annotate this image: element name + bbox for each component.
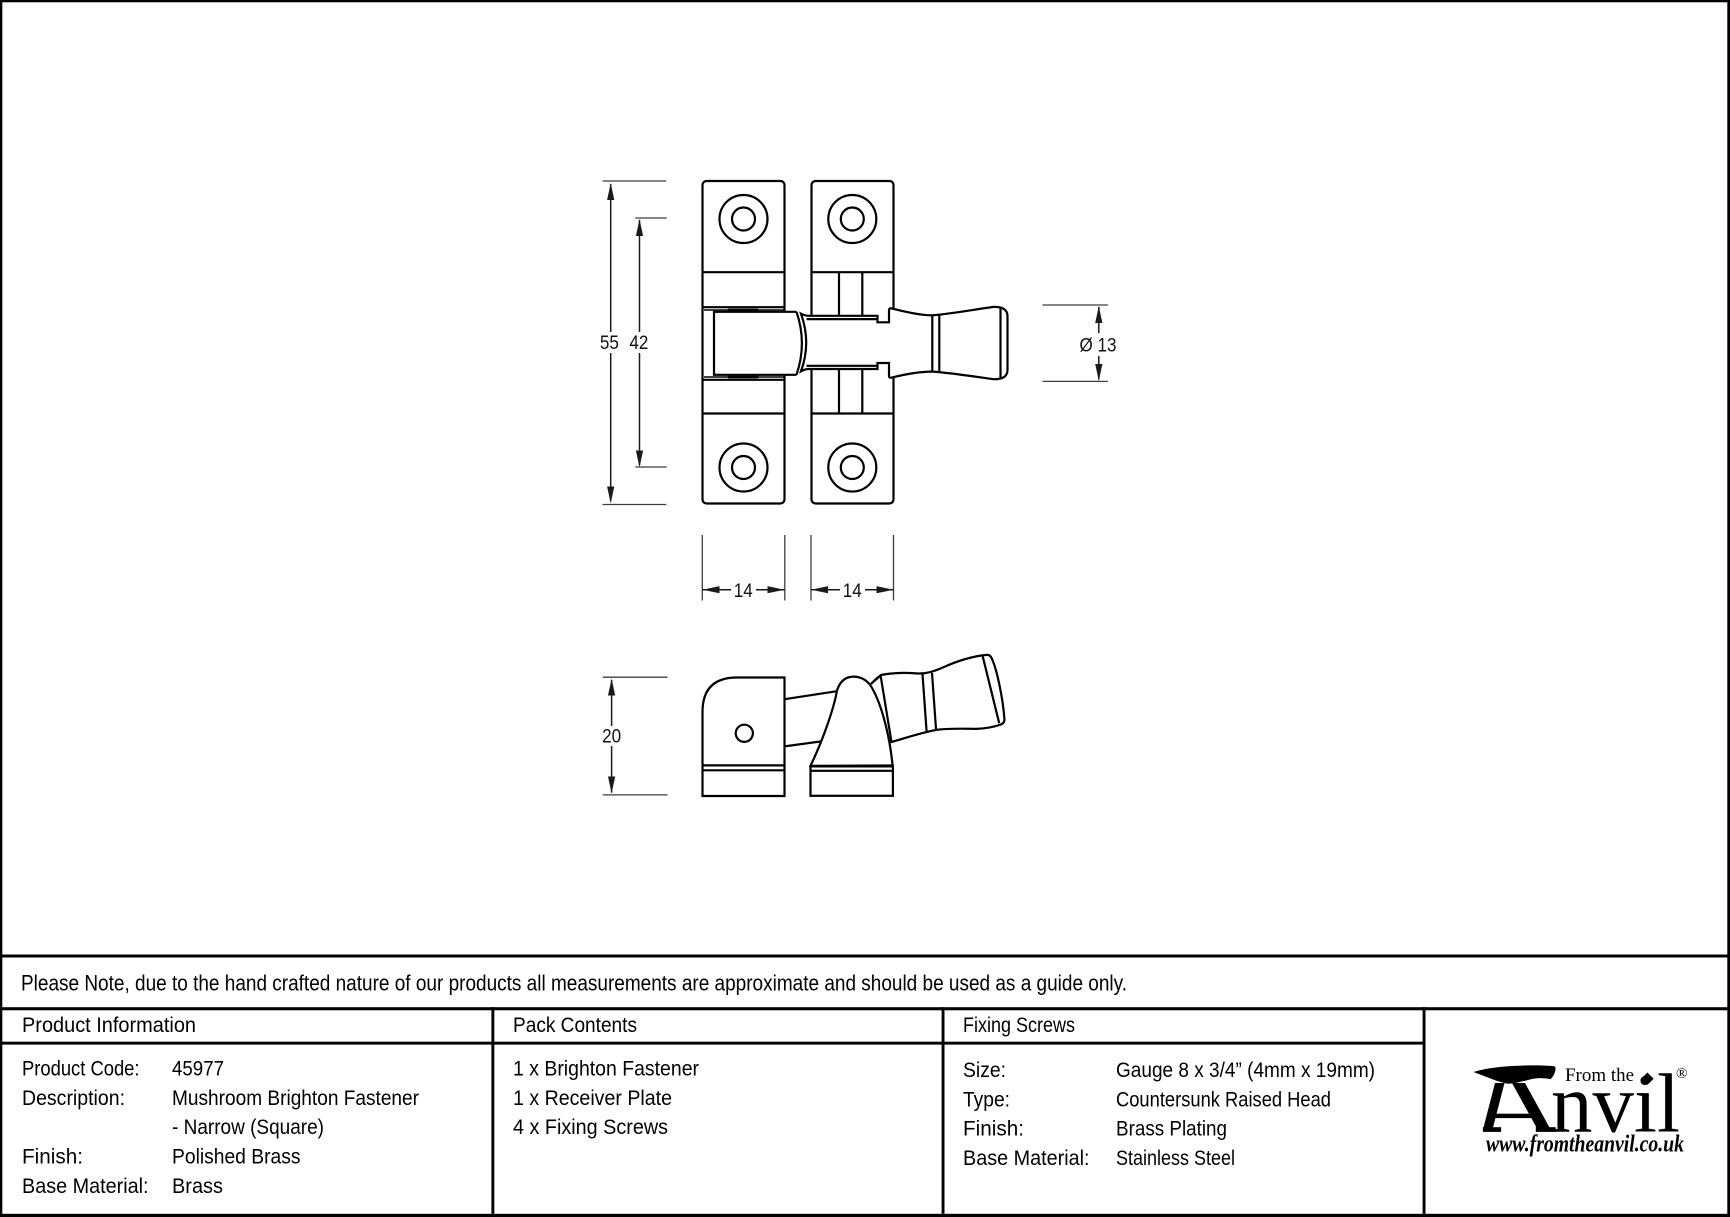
svg-text:20: 20 [602,727,621,748]
svg-text:42: 42 [629,333,648,354]
svg-text:®: ® [1676,1066,1687,1082]
svg-text:Description:: Description: [22,1087,125,1110]
svg-text:Countersunk Raised Head: Countersunk Raised Head [1116,1088,1331,1111]
svg-text:Type:: Type: [963,1088,1010,1111]
svg-text:4 x Fixing Screws: 4 x Fixing Screws [513,1116,668,1139]
svg-text:Ø 13: Ø 13 [1080,335,1117,356]
svg-text:Brass Plating: Brass Plating [1116,1118,1227,1141]
svg-text:www.fromtheanvil.co.uk: www.fromtheanvil.co.uk [1486,1132,1684,1158]
svg-text:55: 55 [600,333,619,354]
svg-text:Base Material:: Base Material: [22,1175,149,1198]
svg-text:1 x Receiver Plate: 1 x Receiver Plate [513,1087,672,1110]
svg-text:45977: 45977 [172,1057,224,1080]
svg-text:Pack Contents: Pack Contents [513,1014,637,1037]
svg-text:Finish:: Finish: [963,1118,1024,1141]
svg-text:- Narrow (Square): - Narrow (Square) [172,1116,324,1139]
svg-text:Gauge 8 x 3/4” (4mm x 19mm): Gauge 8 x 3/4” (4mm x 19mm) [1116,1059,1375,1082]
svg-text:Polished Brass: Polished Brass [172,1145,301,1168]
svg-text:Fixing Screws: Fixing Screws [963,1014,1075,1037]
svg-text:Brass: Brass [172,1175,223,1198]
svg-text:Size:: Size: [963,1059,1006,1082]
svg-text:14: 14 [734,581,753,602]
svg-text:Product Information: Product Information [22,1014,196,1037]
svg-text:Please Note, due to the hand c: Please Note, due to the hand crafted nat… [21,971,1127,996]
svg-text:1 x Brighton Fastener: 1 x Brighton Fastener [513,1057,699,1080]
svg-text:Finish:: Finish: [22,1145,83,1168]
svg-text:Product Code:: Product Code: [22,1057,140,1080]
svg-text:Mushroom Brighton Fastener: Mushroom Brighton Fastener [172,1087,419,1110]
svg-text:14: 14 [843,581,862,602]
svg-text:Stainless Steel: Stainless Steel [1116,1147,1235,1170]
svg-text:Base Material:: Base Material: [963,1147,1090,1170]
